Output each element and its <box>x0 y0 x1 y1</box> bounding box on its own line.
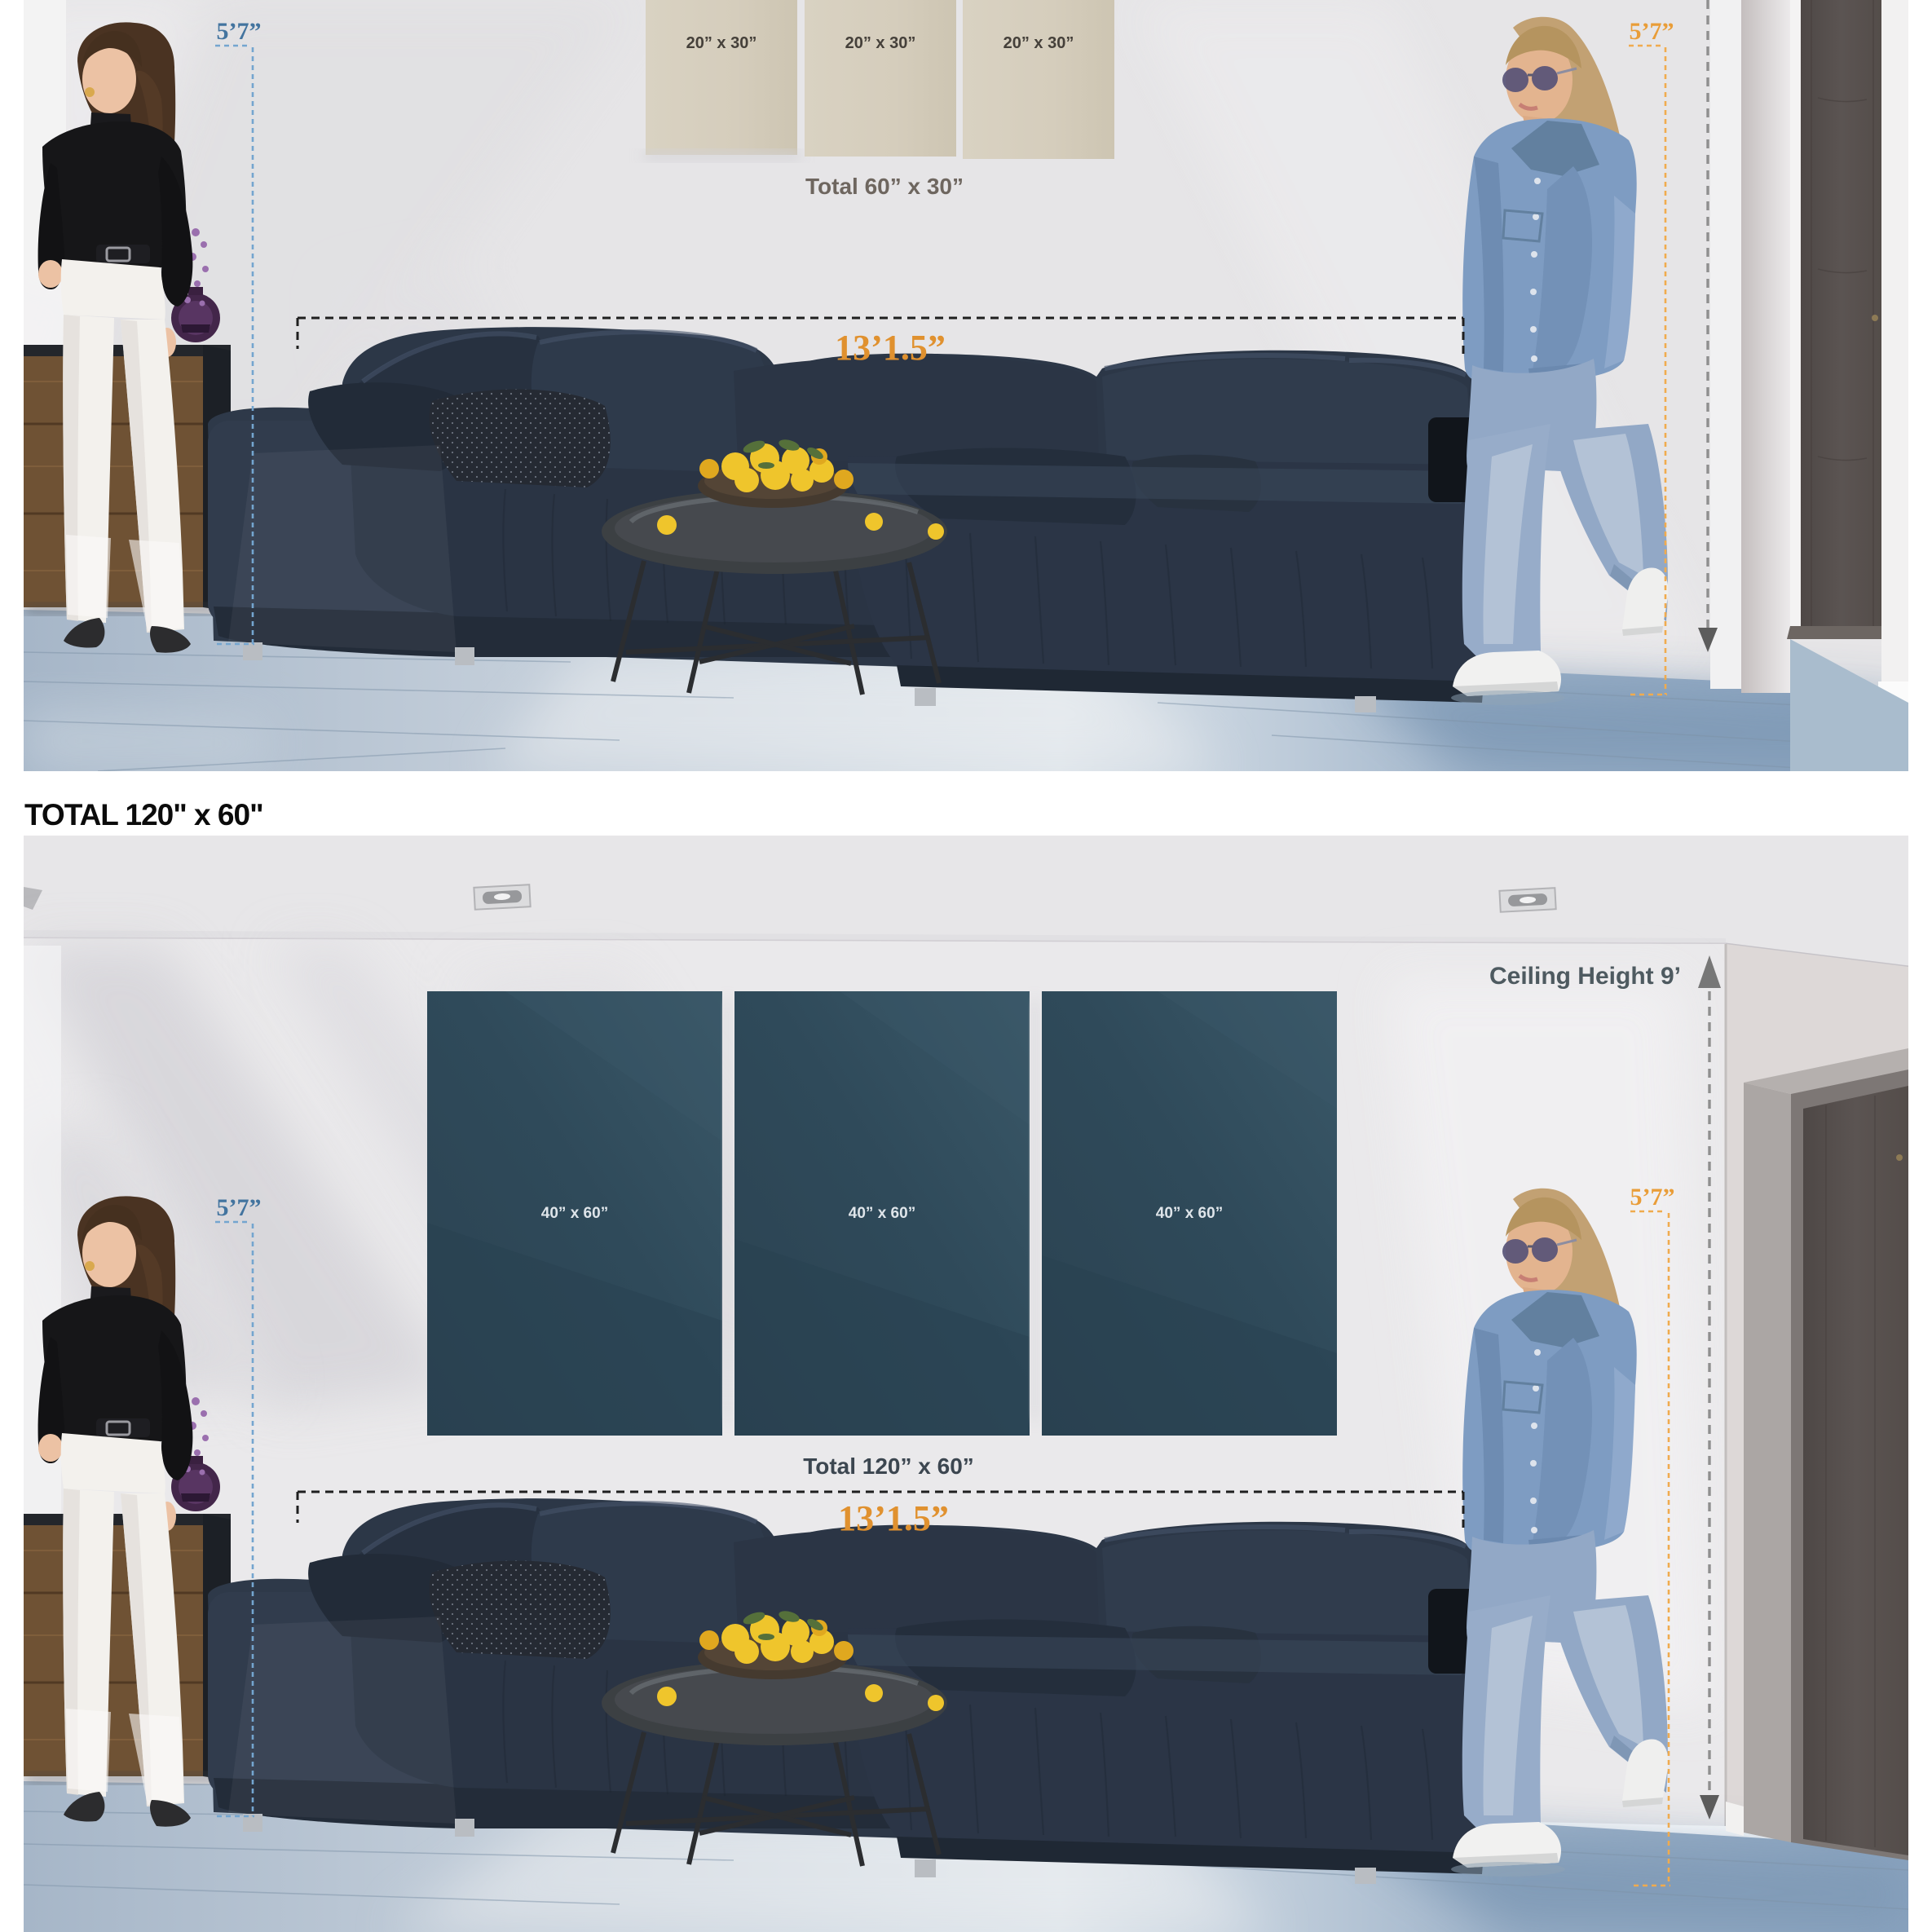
svg-text:Ceiling Height 9’: Ceiling Height 9’ <box>1489 963 1681 990</box>
svg-text:20” x 30”: 20” x 30” <box>686 34 757 52</box>
svg-text:40” x 60”: 40” x 60” <box>541 1205 608 1222</box>
svg-text:40” x 60”: 40” x 60” <box>849 1205 915 1222</box>
svg-text:5’7”: 5’7” <box>217 1194 262 1221</box>
svg-text:20” x 30”: 20” x 30” <box>845 34 916 52</box>
svg-text:5’7”: 5’7” <box>1630 1184 1675 1211</box>
svg-text:5’7”: 5’7” <box>217 18 262 45</box>
svg-text:20” x 30”: 20” x 30” <box>1003 34 1074 52</box>
svg-text:40” x 60”: 40” x 60” <box>1156 1205 1223 1222</box>
svg-text:13’1.5”: 13’1.5” <box>838 1498 949 1538</box>
svg-text:13’1.5”: 13’1.5” <box>835 328 946 368</box>
svg-text:Total 120” x 60”: Total 120” x 60” <box>803 1453 974 1479</box>
svg-text:TOTAL 120" x 60": TOTAL 120" x 60" <box>24 798 263 831</box>
svg-text:5’7”: 5’7” <box>1630 18 1674 45</box>
svg-text:Total 60” x 30”: Total 60” x 30” <box>805 174 964 199</box>
